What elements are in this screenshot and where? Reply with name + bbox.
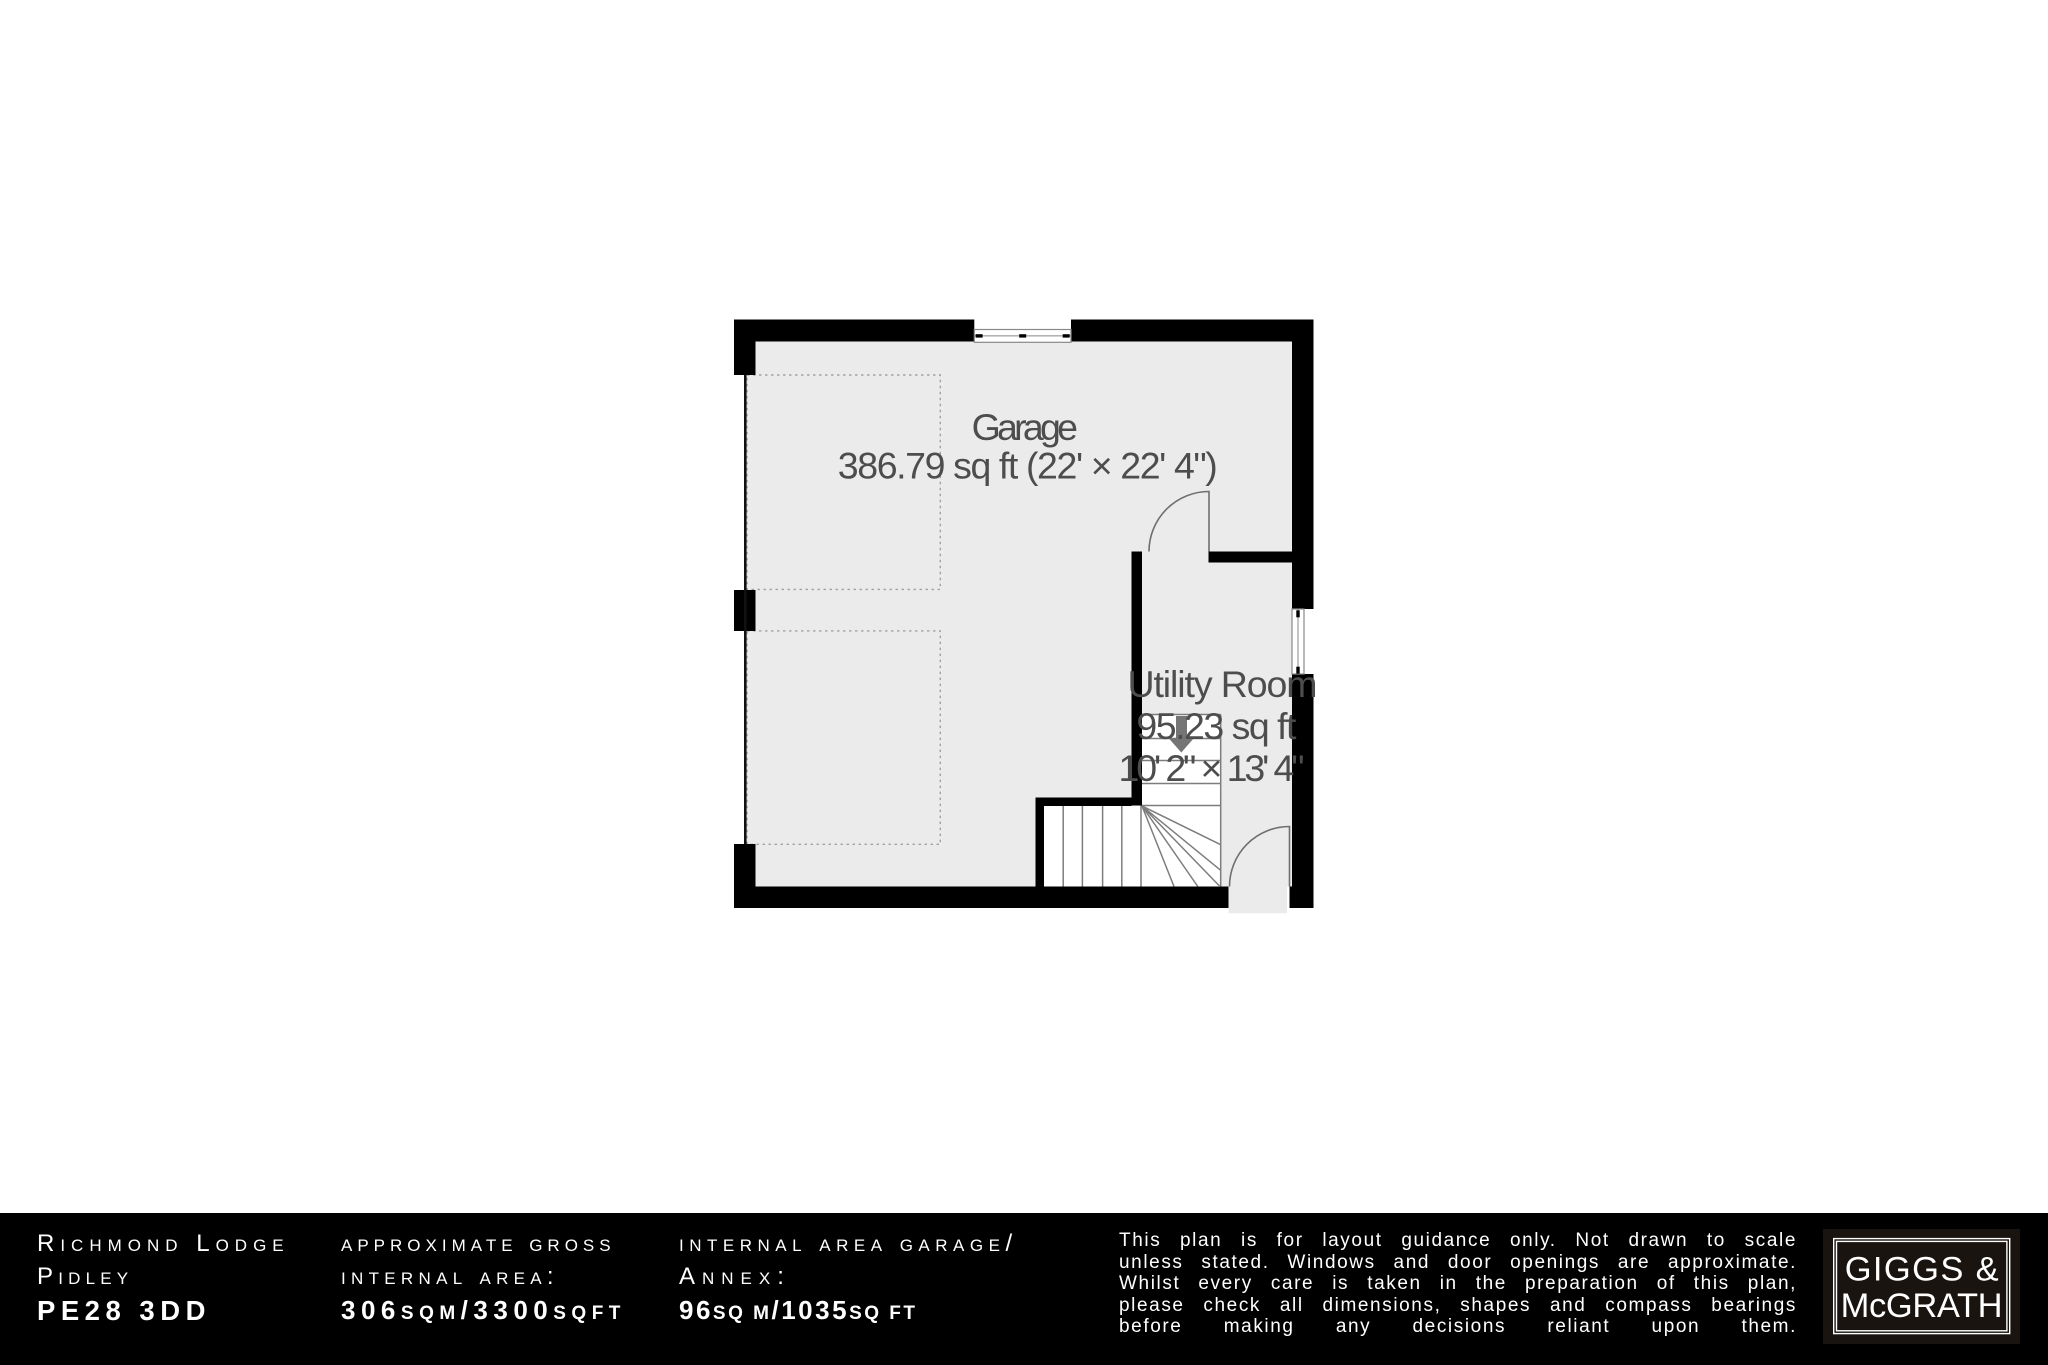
svg-text:McGRATH: McGRATH xyxy=(1841,1287,2003,1325)
svg-text:Utility Room: Utility Room xyxy=(1128,663,1318,705)
svg-text:GIGGS &: GIGGS & xyxy=(1845,1251,1999,1289)
svg-text:95.23 sq ft: 95.23 sq ft xyxy=(1136,705,1297,747)
svg-text:386.79 sq ft (22' × 22' 4"): 386.79 sq ft (22' × 22' 4") xyxy=(838,445,1218,487)
svg-text:Garage: Garage xyxy=(972,406,1078,448)
svg-text:10' 2" × 13' 4": 10' 2" × 13' 4" xyxy=(1119,747,1305,789)
